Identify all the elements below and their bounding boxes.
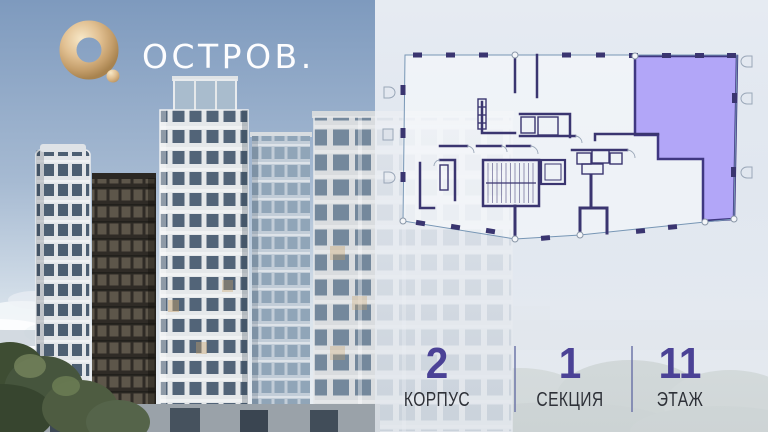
logo-ring-icon: [57, 17, 127, 89]
info-item-sektsiya: 1 СЕКЦИЯ: [515, 342, 625, 412]
logo-text: ОСТРОВ.: [142, 34, 315, 73]
etazh-value: 11: [629, 342, 730, 386]
etazh-label: ЭТАЖ: [637, 389, 723, 412]
info-item-etazh: 11 ЭТАЖ: [625, 342, 735, 412]
stairwell: [483, 160, 539, 206]
tower-center-tall: [160, 76, 248, 432]
floor-plan-diagram: [378, 36, 758, 268]
info-item-korpus: 2 КОРПУС: [382, 342, 492, 412]
apartment-info: 2 КОРПУС 1 СЕКЦИЯ 11 ЭТАЖ: [375, 338, 768, 432]
sektsiya-value: 1: [519, 342, 620, 386]
korpus-value: 2: [386, 342, 487, 386]
promo-banner: ОСТРОВ.: [0, 0, 768, 432]
sektsiya-label: СЕКЦИЯ: [527, 389, 613, 412]
korpus-label: КОРПУС: [394, 389, 480, 412]
tower-mid-glass: [250, 132, 312, 432]
brand-logo: ОСТРОВ.: [57, 17, 315, 89]
